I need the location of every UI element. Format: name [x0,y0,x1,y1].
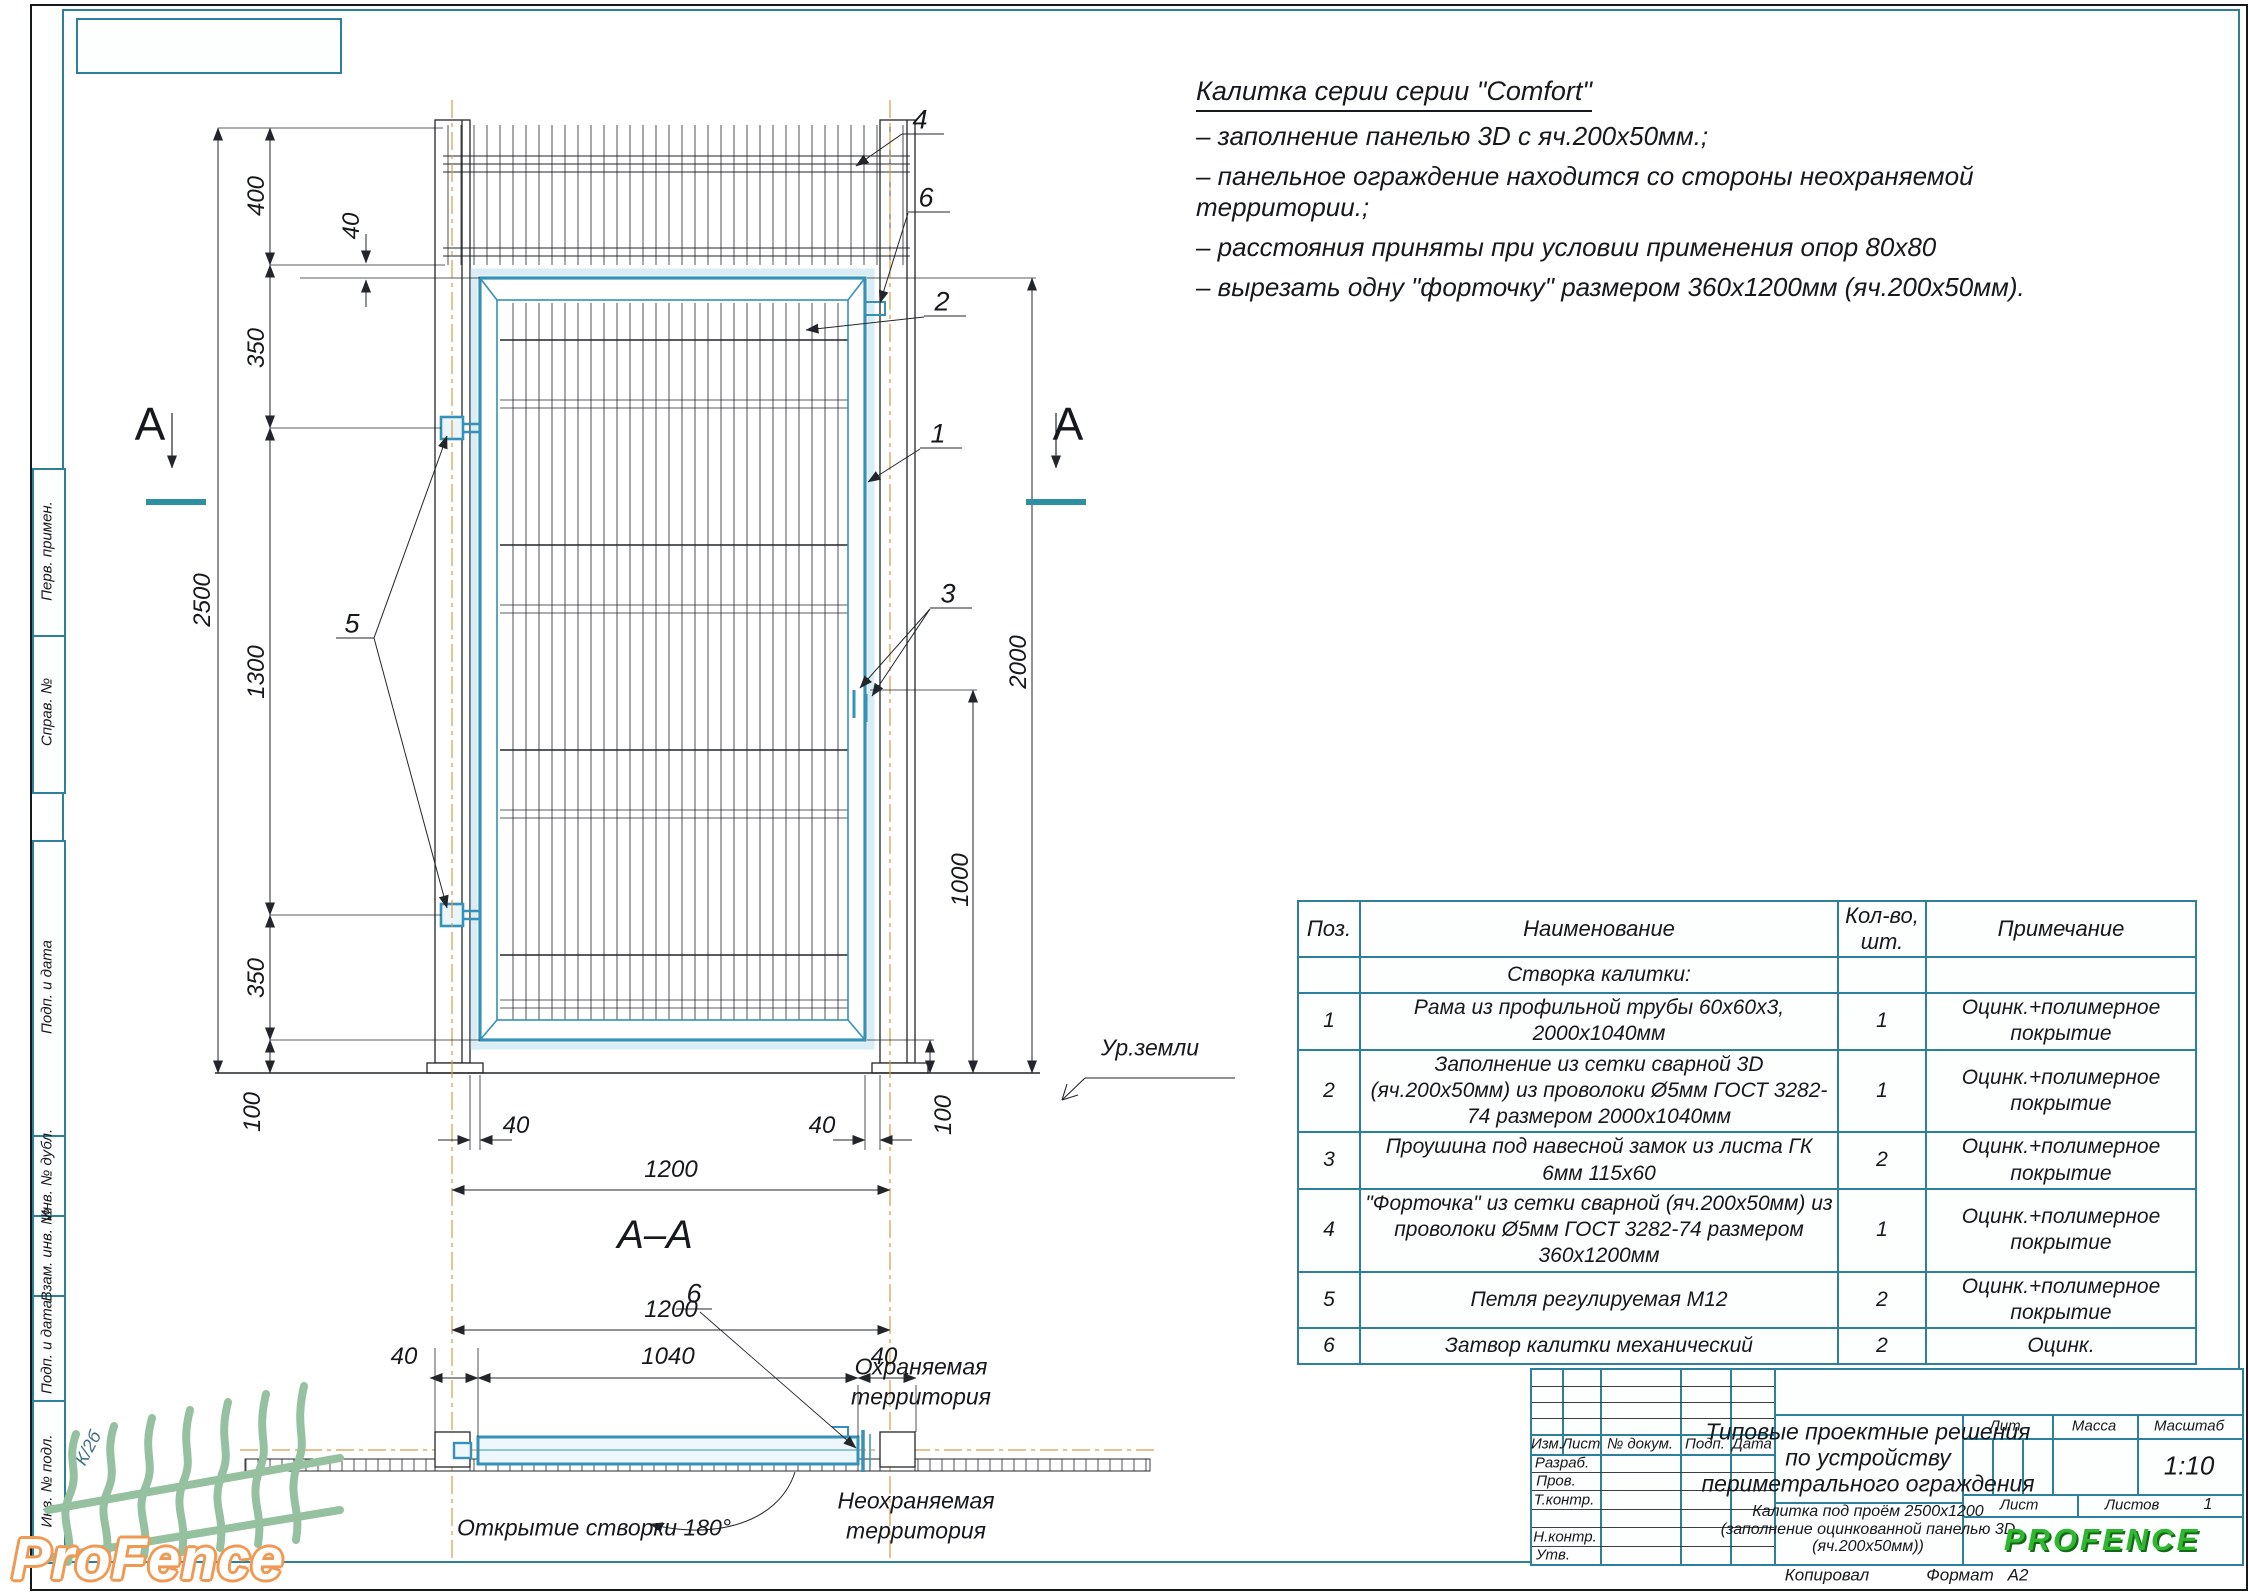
callout-1: 1 [930,421,945,448]
dim-clearance-right: 100 [932,1095,956,1135]
spec-header-name: Наименование [1360,901,1838,957]
callout-4: 4 [912,107,927,134]
tb-title-line3: периметрального ограждения [1701,1471,2034,1498]
top-panel-mesh [443,125,910,265]
tb-doc-line3: (яч.200х50мм)) [1812,1538,1924,1556]
callout-6: 6 [918,185,933,212]
tb-doc-line1: Калитка под проём 2500х1200 [1752,1503,1983,1521]
dim-overall-height: 2500 [191,573,215,626]
section-cut-letter-left: A [135,401,166,447]
tb-title-line2: по устройству [1785,1445,1951,1472]
logo-wordmark: ProFence [12,1531,284,1589]
notes-block: Калитка серии серии "Comfort" – заполнен… [1196,76,2126,303]
spec-header-row: Поз. Наименование Кол-во, шт. Примечание [1298,901,2196,957]
spec-header-qty: Кол-во, шт. [1838,901,1926,957]
tb-scale-label: Масштаб [2154,1418,2224,1435]
tb-doc: № докум. [1607,1436,1673,1453]
unprotected-area-line1: Неохраняемая [837,1490,994,1513]
spec-table: Поз. Наименование Кол-во, шт. Примечание… [1297,900,2197,1365]
title-block: Изм. Лист № докум. Подп. Дата Разраб. Пр… [1530,1368,2244,1566]
spec-row-5: 5 Петля регулируемая М12 2 Оцинк.+полиме… [1298,1272,2196,1329]
callout-6-bottom: 6 [686,1281,701,1308]
callout-2: 2 [934,289,949,316]
gate-mesh [505,303,847,1020]
dim-hinge-spacing: 1300 [245,645,269,698]
drawing-sheet: { "colors":{"frame_teal":"#2e7f9c","gate… [0,0,2249,1592]
tb-izm: Изм. [1531,1436,1563,1453]
protected-area-line1: Охраняемая [855,1356,988,1379]
brand-stamp: PROFENCE [2004,1522,2200,1558]
spec-header-note: Примечание [1926,901,2196,957]
format-value: А2 [2008,1567,2029,1584]
spec-row-1: 1 Рама из профильной трубы 60х60х3, 2000… [1298,993,2196,1050]
swing-label: Открытие створки 180° [457,1517,731,1540]
plan-gate-leaf [454,1427,870,1472]
dim-panel-height: 400 [245,176,269,216]
unprotected-area-line2: территория [846,1520,986,1543]
dim-gap-top: 40 [340,213,364,240]
notes-title: Калитка серии серии "Comfort" [1196,76,1592,112]
spec-row-2: 2 Заполнение из сетки сварной 3D (яч.200… [1298,1050,2196,1133]
note-line-4: – вырезать одну "форточку" размером 360х… [1196,272,2126,303]
tb-list: Лист [1562,1436,1601,1453]
spec-header-pos: Поз. [1298,901,1360,957]
dim-post-gap-left: 40 [503,1114,530,1138]
protected-area-line2: территория [851,1386,991,1409]
callout-3: 3 [940,581,955,608]
tb-scale-value: 1:10 [2164,1451,2215,1482]
tb-role-tkontr: Т.контр. [1534,1492,1595,1509]
tb-lit-label: Лит. [1989,1418,2024,1435]
spec-row-6: 6 Затвор калитки механический 2 Оцинк. [1298,1328,2196,1364]
tb-role-utv: Утв. [1536,1547,1570,1564]
callout6-bottom-leader [700,1312,856,1448]
ground-level-label: Ур.земли [1101,1037,1199,1060]
tb-role-nkontr: Н.контр. [1533,1529,1597,1546]
spec-group-row: Створка калитки: [1298,957,2196,993]
callout-5: 5 [344,611,359,638]
dim-gate-height: 2000 [1007,635,1031,688]
tb-sheet-label: Лист [2000,1497,2039,1514]
tb-sheets-value: 1 [2204,1496,2213,1514]
tb-doc-line2: (заполнение оцинкованной панелью 3D [1721,1521,2016,1539]
spec-row-4: 4 "Форточка" из сетки сварной (яч.200х50… [1298,1189,2196,1272]
dim-opening-width: 1200 [644,1158,697,1182]
section-dim-gap-left: 40 [391,1345,418,1369]
spec-group-label: Створка калитки: [1360,957,1838,993]
dim-hinge-bottom-offset: 350 [245,958,269,998]
tb-mass-label: Масса [2072,1418,2116,1435]
section-dim-frame-width: 1040 [641,1345,694,1369]
section-title: А–А [617,1215,693,1255]
dim-post-gap-right: 40 [809,1114,836,1138]
note-line-1: – заполнение панелью 3D с яч.200х50мм.; [1196,121,2126,152]
section-cut-letter-right: A [1053,401,1084,447]
tb-role-prov: Пров. [1536,1473,1576,1490]
note-line-3: – расстояния приняты при условии примене… [1196,232,2126,263]
tb-sheets-label: Листов [2105,1497,2160,1514]
copied-label: Копировал [1785,1567,1870,1584]
note-line-2: – панельное ограждение находится со стор… [1196,161,2126,223]
ground-level-symbol [1062,1078,1235,1100]
spec-row-3: 3 Проушина под навесной замок из листа Г… [1298,1132,2196,1189]
format-label: Формат [1926,1567,1994,1584]
dim-clearance-left: 100 [241,1092,265,1132]
tb-role-razrab: Разраб. [1535,1455,1589,1472]
dim-hinge-top-offset: 350 [245,328,269,368]
dim-latch-height: 1000 [949,853,973,906]
tb-title-line1: Типовые проектные решения [1706,1419,2031,1446]
